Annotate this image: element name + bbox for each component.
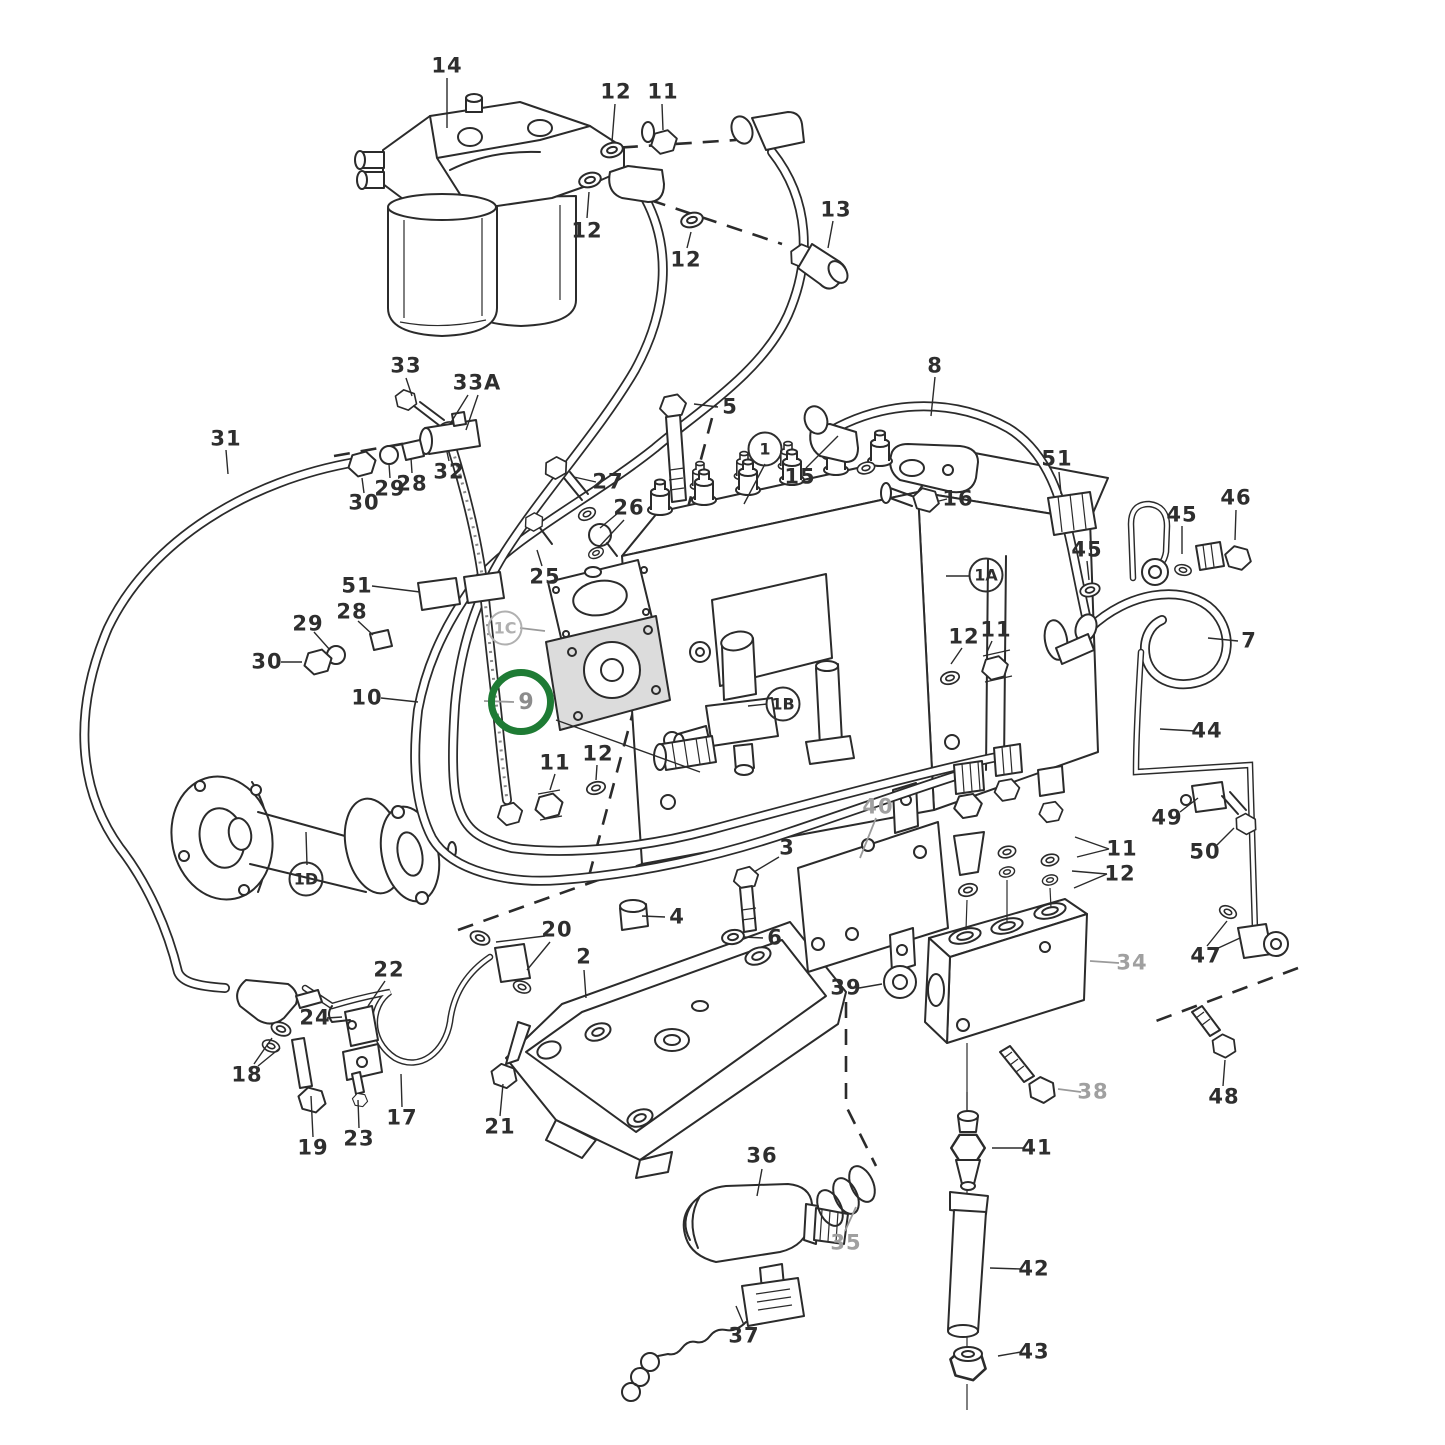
fuel-filter-assembly — [355, 94, 624, 336]
diagram-drawing — [0, 0, 1445, 1445]
mounting-plate — [506, 922, 846, 1178]
valve-block — [925, 899, 1087, 1114]
drive-coupling — [160, 767, 456, 909]
solenoid-valve — [622, 1162, 880, 1401]
parts-diagram: 1412111212133333A31302928325272625512829… — [0, 0, 1445, 1445]
